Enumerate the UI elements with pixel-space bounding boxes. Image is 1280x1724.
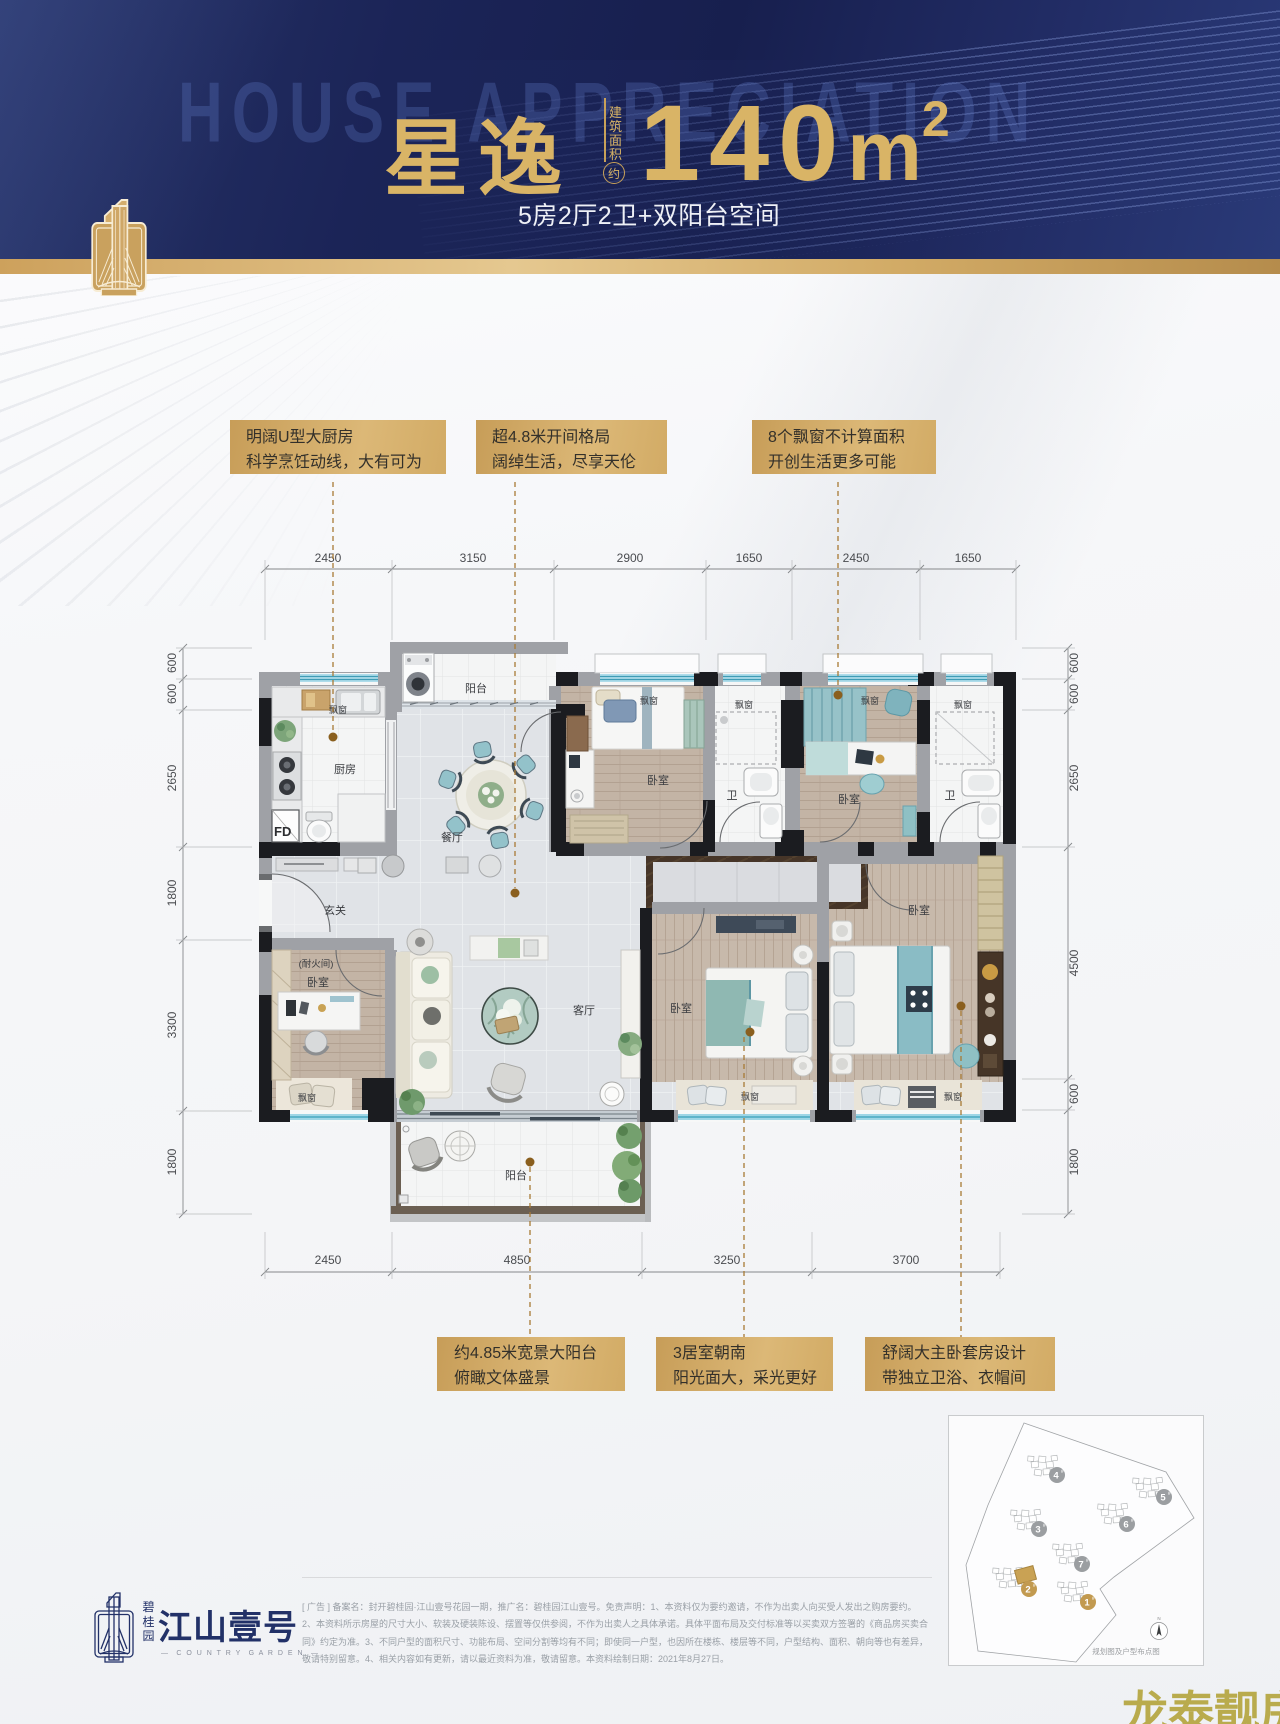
- svg-text:阳台: 阳台: [465, 681, 487, 695]
- svg-text:N: N: [1157, 1616, 1160, 1621]
- svg-text:3: 3: [1035, 1525, 1040, 1536]
- svg-text:客厅: 客厅: [573, 1003, 595, 1017]
- svg-text:7: 7: [1078, 1560, 1083, 1571]
- svg-text:规划图及户型布点图: 规划图及户型布点图: [1092, 1646, 1160, 1656]
- svg-text:600: 600: [165, 653, 179, 673]
- svg-text:卫: 卫: [727, 790, 738, 802]
- svg-text:2: 2: [1025, 1585, 1030, 1596]
- svg-text:2650: 2650: [1067, 764, 1081, 791]
- svg-text:卫: 卫: [945, 790, 956, 802]
- svg-text:2450: 2450: [315, 1253, 342, 1267]
- svg-text:2900: 2900: [617, 551, 644, 565]
- svg-text:2450: 2450: [315, 551, 342, 565]
- svg-text:#: #: [1061, 1469, 1064, 1475]
- svg-text:飘窗: 飘窗: [640, 695, 658, 706]
- svg-text:阳台: 阳台: [505, 1168, 527, 1182]
- svg-text:2650: 2650: [165, 764, 179, 791]
- svg-text:玄关: 玄关: [324, 903, 346, 917]
- svg-text:3700: 3700: [893, 1253, 920, 1267]
- svg-text:3150: 3150: [460, 551, 487, 565]
- svg-text:1650: 1650: [955, 551, 982, 565]
- svg-text:厨房: 厨房: [334, 763, 356, 776]
- svg-text:1: 1: [1084, 1598, 1090, 1609]
- svg-text:600: 600: [1067, 684, 1081, 704]
- svg-text:卧室: 卧室: [838, 792, 860, 806]
- svg-text:#: #: [1086, 1558, 1089, 1564]
- svg-text:飘窗: 飘窗: [861, 695, 879, 706]
- svg-text:3300: 3300: [165, 1011, 179, 1038]
- svg-text:4500: 4500: [1067, 949, 1081, 976]
- svg-text:卧室: 卧室: [307, 975, 329, 989]
- svg-text:#: #: [1092, 1596, 1095, 1602]
- svg-text:飘窗: 飘窗: [298, 1092, 316, 1103]
- svg-text:1800: 1800: [165, 879, 179, 906]
- svg-text:卧室: 卧室: [670, 1001, 692, 1015]
- svg-text:(耐火间): (耐火间): [299, 958, 334, 970]
- svg-text:餐厅: 餐厅: [441, 830, 463, 844]
- svg-text:4850: 4850: [504, 1253, 531, 1267]
- svg-text:飘窗: 飘窗: [735, 699, 753, 710]
- svg-text:#: #: [1033, 1583, 1036, 1589]
- svg-text:#: #: [1043, 1523, 1046, 1529]
- svg-text:600: 600: [1067, 1084, 1081, 1104]
- svg-text:飘窗: 飘窗: [944, 1091, 962, 1102]
- svg-text:#: #: [1168, 1491, 1171, 1497]
- svg-text:飘窗: 飘窗: [329, 704, 347, 715]
- svg-text:4: 4: [1053, 1471, 1059, 1482]
- svg-text:5: 5: [1160, 1493, 1166, 1504]
- svg-text:600: 600: [165, 684, 179, 704]
- svg-text:3250: 3250: [714, 1253, 741, 1267]
- svg-text:600: 600: [1067, 653, 1081, 673]
- svg-text:FD: FD: [274, 824, 291, 839]
- svg-text:6: 6: [1123, 1520, 1128, 1531]
- svg-text:飘窗: 飘窗: [954, 699, 972, 710]
- svg-text:卧室: 卧室: [908, 903, 930, 917]
- svg-text:1800: 1800: [165, 1148, 179, 1175]
- svg-text:1650: 1650: [736, 551, 763, 565]
- svg-text:#: #: [1131, 1518, 1134, 1524]
- svg-text:卧室: 卧室: [647, 773, 669, 787]
- svg-text:1800: 1800: [1067, 1148, 1081, 1175]
- svg-text:2450: 2450: [843, 551, 870, 565]
